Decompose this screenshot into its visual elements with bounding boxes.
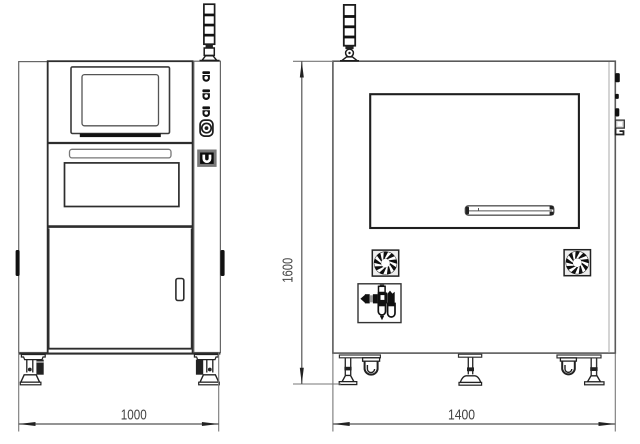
svg-text:1400: 1400	[448, 407, 475, 424]
svg-text:1000: 1000	[121, 407, 147, 424]
svg-text:1600: 1600	[280, 258, 297, 283]
